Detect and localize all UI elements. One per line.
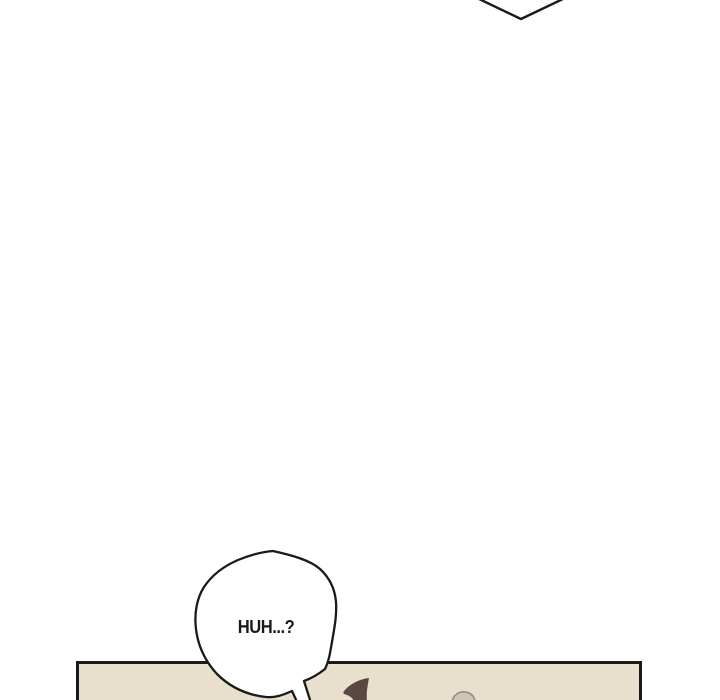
speech-bubble-text: HUH...? — [238, 617, 295, 638]
previous-bubble-tip — [477, 0, 565, 19]
gray-object-shape — [452, 692, 475, 700]
hair-lock-shape — [343, 678, 369, 700]
comic-page: HUH...? — [0, 0, 720, 700]
artwork-layer — [0, 0, 720, 700]
